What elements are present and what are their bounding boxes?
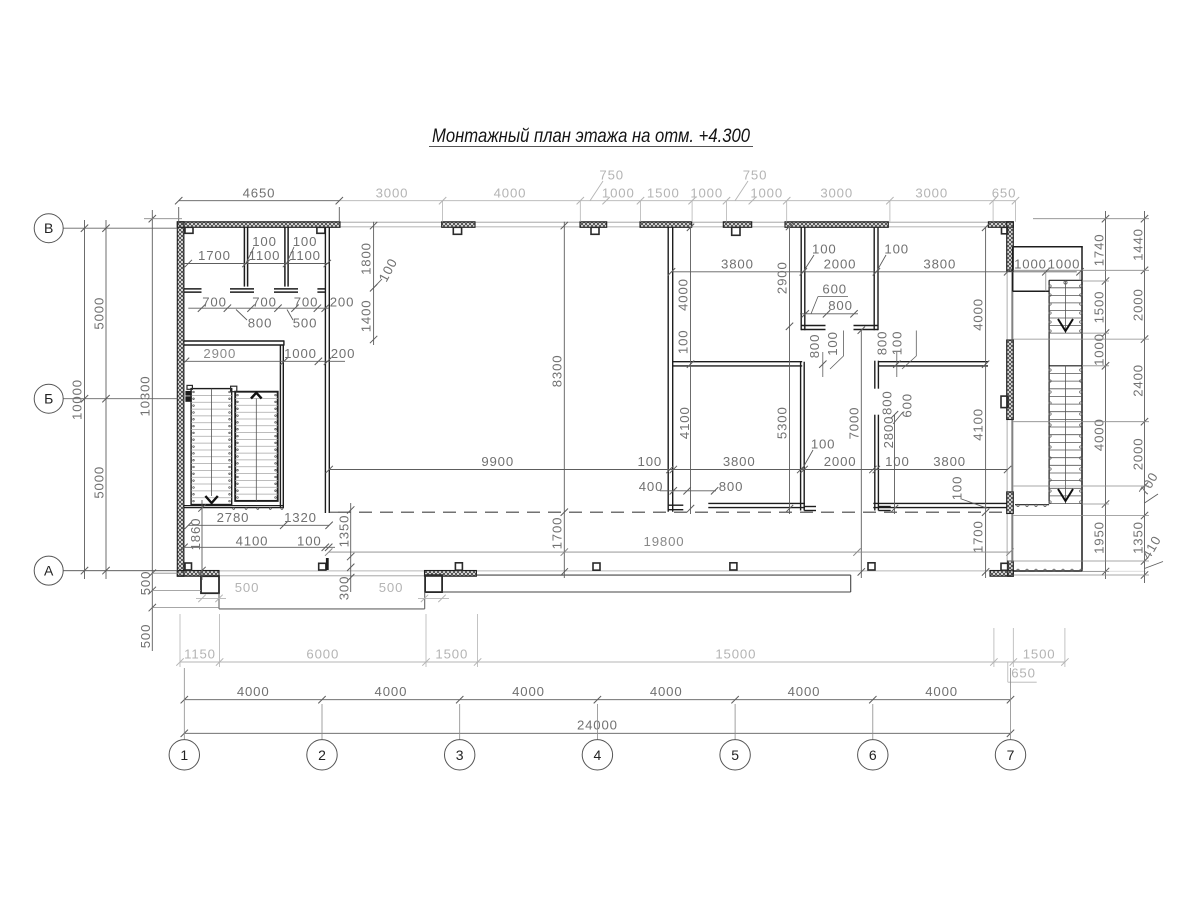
svg-text:4000: 4000: [971, 298, 986, 331]
svg-text:1500: 1500: [647, 186, 680, 201]
svg-text:3: 3: [456, 747, 464, 763]
svg-text:19800: 19800: [644, 534, 685, 549]
svg-text:3800: 3800: [923, 256, 956, 271]
svg-text:4000: 4000: [788, 684, 821, 699]
svg-text:100: 100: [950, 476, 965, 501]
svg-text:100: 100: [812, 242, 837, 257]
svg-text:1000: 1000: [750, 186, 783, 201]
svg-text:4000: 4000: [925, 684, 958, 699]
svg-text:700: 700: [252, 294, 277, 309]
svg-text:700: 700: [202, 294, 227, 309]
svg-text:3800: 3800: [723, 454, 756, 469]
svg-text:500: 500: [379, 580, 404, 595]
svg-text:1500: 1500: [435, 647, 468, 662]
svg-text:2800: 2800: [881, 416, 896, 449]
svg-text:800: 800: [248, 316, 273, 331]
svg-text:4000: 4000: [494, 186, 527, 201]
svg-text:4650: 4650: [243, 186, 276, 201]
svg-text:500: 500: [293, 316, 318, 331]
svg-text:1000: 1000: [1091, 333, 1106, 366]
svg-text:6: 6: [869, 747, 877, 763]
svg-text:4000: 4000: [1091, 418, 1106, 451]
svg-text:1000: 1000: [690, 186, 723, 201]
svg-text:1500: 1500: [1091, 291, 1106, 324]
svg-text:5300: 5300: [775, 406, 790, 439]
svg-text:100: 100: [890, 331, 905, 356]
svg-text:500: 500: [138, 624, 153, 649]
svg-text:500: 500: [235, 580, 260, 595]
svg-text:4100: 4100: [677, 406, 692, 439]
svg-text:1100: 1100: [289, 248, 321, 263]
svg-text:8300: 8300: [549, 355, 564, 388]
svg-text:800: 800: [828, 298, 853, 313]
svg-text:2000: 2000: [824, 454, 857, 469]
svg-text:2000: 2000: [1130, 288, 1145, 321]
svg-text:3000: 3000: [376, 186, 409, 201]
svg-text:4000: 4000: [650, 684, 683, 699]
svg-text:2900: 2900: [203, 346, 236, 361]
svg-text:100: 100: [885, 454, 910, 469]
svg-text:100: 100: [825, 331, 840, 356]
svg-text:100: 100: [297, 534, 322, 549]
svg-text:В: В: [44, 220, 53, 236]
svg-text:700: 700: [294, 294, 319, 309]
svg-text:100: 100: [811, 437, 836, 452]
svg-text:800: 800: [807, 334, 822, 359]
svg-text:200: 200: [331, 346, 356, 361]
svg-text:7: 7: [1007, 747, 1015, 763]
svg-text:1000: 1000: [284, 346, 317, 361]
svg-text:10300: 10300: [137, 376, 152, 417]
svg-text:1700: 1700: [549, 517, 564, 550]
svg-text:4000: 4000: [375, 684, 408, 699]
svg-text:Монтажный план этажа на отм. +: Монтажный план этажа на отм. +4.300: [432, 125, 750, 147]
svg-text:1: 1: [180, 747, 188, 763]
svg-text:1400: 1400: [359, 300, 374, 333]
svg-text:4100: 4100: [236, 534, 269, 549]
svg-text:Б: Б: [44, 391, 53, 407]
svg-text:7000: 7000: [846, 407, 861, 440]
svg-text:3000: 3000: [820, 186, 853, 201]
svg-text:600: 600: [822, 281, 847, 296]
svg-text:1000: 1000: [1014, 256, 1047, 271]
svg-text:1500: 1500: [1023, 647, 1056, 662]
svg-text:3000: 3000: [915, 186, 948, 201]
svg-text:3800: 3800: [933, 454, 966, 469]
svg-text:2400: 2400: [1130, 364, 1145, 397]
svg-text:А: А: [44, 563, 54, 579]
svg-text:1100: 1100: [249, 248, 281, 263]
svg-text:1320: 1320: [284, 510, 317, 525]
svg-text:5000: 5000: [92, 297, 107, 330]
svg-text:1700: 1700: [198, 248, 231, 263]
svg-text:1440: 1440: [1130, 228, 1145, 261]
svg-text:200: 200: [330, 294, 355, 309]
svg-text:100: 100: [884, 242, 909, 257]
svg-text:1000: 1000: [1048, 256, 1081, 271]
svg-text:5: 5: [731, 747, 739, 763]
svg-text:2000: 2000: [1130, 438, 1145, 471]
svg-text:3800: 3800: [721, 256, 754, 271]
svg-text:10000: 10000: [70, 379, 85, 420]
svg-text:2780: 2780: [217, 510, 250, 525]
svg-text:9900: 9900: [481, 454, 514, 469]
svg-text:15000: 15000: [715, 647, 756, 662]
svg-text:1700: 1700: [971, 520, 986, 553]
svg-text:1800: 1800: [359, 242, 374, 275]
svg-text:4000: 4000: [512, 684, 545, 699]
svg-text:100: 100: [252, 234, 277, 249]
svg-text:100: 100: [293, 234, 318, 249]
svg-text:650: 650: [1011, 666, 1036, 681]
svg-text:800: 800: [875, 331, 890, 356]
svg-text:5000: 5000: [92, 466, 107, 499]
svg-text:1950: 1950: [1091, 521, 1106, 554]
svg-text:750: 750: [599, 168, 624, 183]
svg-text:1150: 1150: [184, 647, 216, 662]
svg-text:4000: 4000: [676, 278, 691, 311]
svg-text:750: 750: [743, 168, 768, 183]
svg-text:4: 4: [594, 747, 602, 763]
svg-text:800: 800: [880, 390, 895, 415]
svg-text:500: 500: [138, 571, 153, 596]
svg-text:4000: 4000: [237, 684, 270, 699]
svg-text:1860: 1860: [188, 518, 203, 551]
svg-text:2: 2: [318, 747, 326, 763]
svg-text:650: 650: [992, 186, 1017, 201]
svg-text:800: 800: [719, 479, 744, 494]
svg-text:6000: 6000: [306, 647, 339, 662]
svg-text:100: 100: [676, 330, 691, 355]
svg-text:400: 400: [639, 479, 664, 494]
svg-text:2000: 2000: [824, 256, 857, 271]
svg-text:1740: 1740: [1091, 234, 1106, 267]
svg-text:300: 300: [337, 576, 352, 601]
svg-text:100: 100: [638, 454, 663, 469]
svg-text:2900: 2900: [775, 261, 790, 294]
svg-text:1350: 1350: [337, 515, 352, 548]
svg-text:1000: 1000: [602, 186, 635, 201]
svg-text:4100: 4100: [971, 408, 986, 441]
